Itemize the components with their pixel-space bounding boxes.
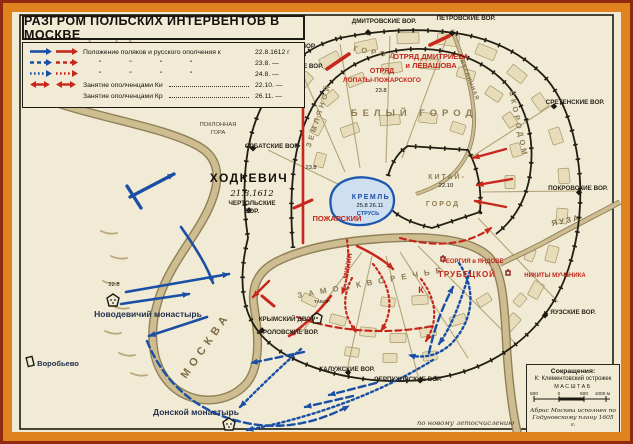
novodevichy-fort-icon xyxy=(107,294,119,306)
city-block xyxy=(545,245,560,263)
date-23-8-west: 23.8 xyxy=(305,165,316,171)
label-otryad-dmitrieva: ОТРЯД ДМИТРИЕВА xyxy=(393,52,469,61)
label-otryad-lopaty: ОТРЯД xyxy=(370,68,394,75)
label-novodevichy: Новодевичий монастырь xyxy=(94,309,202,319)
abbreviation-line: К: Клементовский острожек xyxy=(530,376,616,382)
legend-leader-line xyxy=(169,85,249,87)
city-block xyxy=(527,280,544,299)
city-block xyxy=(383,354,397,363)
date-22-8: 22.8 xyxy=(108,282,119,288)
gate-label-petrovskie: ПЕТРОВСКИЕ ВОР. xyxy=(436,15,495,22)
city-block xyxy=(450,121,466,135)
moskva-river xyxy=(60,104,518,432)
legend-date: 26.11. — xyxy=(255,93,299,100)
gate-label-frolovskie: ФРОЛОВСКИЕ ВОР. xyxy=(257,329,318,336)
city-block xyxy=(505,176,515,189)
legend-label: Занятие ополченцами Кремля xyxy=(83,93,163,100)
gate-label-yauzskie: ЯУЗСКИЕ ВОР. xyxy=(550,309,596,316)
scale-bar: 500 0 500 1000 м xyxy=(530,390,616,404)
city-block xyxy=(329,314,347,327)
legend-dashed-arrows-icon xyxy=(28,58,80,69)
gate-label-orbatskie: ОРБАТСКИЕ ВОР. xyxy=(245,143,300,150)
militia-position-bar xyxy=(262,296,274,306)
label-poklonnaya-1: ПОКЛОННАЯ xyxy=(200,122,237,128)
legend-dotted-arrows-icon xyxy=(28,69,80,80)
scale-tick-label: 1000 м xyxy=(595,391,610,397)
label-georgiya: ГЕОРГИЯ в ЯНДОВЕ xyxy=(442,259,503,265)
city-block xyxy=(340,122,360,138)
label-poklonnaya-2: ГОРА xyxy=(211,130,226,136)
city-block xyxy=(476,292,493,307)
gate-label-dmitrovskie: ДМИТРОВСКИЕ ВОР. xyxy=(352,18,417,25)
legend-date: 22.10. — xyxy=(255,82,299,89)
poster-frame: ДМИТРОВСКИЕ ВОР. ПЕТРОВСКИЕ ВОР. ТВЕРСКИ… xyxy=(0,0,633,444)
label-donskoy: Донской монастырь xyxy=(153,407,239,417)
legend-row: Положение поляков и русского ополчения к… xyxy=(28,47,299,58)
legend-row: Занятие ополченцами Китай-города 22.10. … xyxy=(28,80,299,91)
city-block xyxy=(513,293,528,308)
label-vorobyovo: Воробьево xyxy=(37,359,79,368)
legend-row: Занятие ополченцами Кремля 26.11. — xyxy=(28,91,299,102)
legend-leader-line xyxy=(169,96,249,98)
legend-date: 24.8. — xyxy=(255,71,299,78)
legend-label: " " " " xyxy=(83,71,252,78)
city-block xyxy=(412,295,429,305)
legend-solid-arrows-icon xyxy=(28,47,80,58)
city-block xyxy=(397,32,419,44)
label-krymsky-dvor: КРЫМСКИЙ ДВОР xyxy=(259,314,316,323)
label-otryad-dmitrieva-2: и ЛЕВАШОВА xyxy=(405,61,457,70)
legend-date: 22.8.1612 г xyxy=(255,49,299,56)
scale-box: Сокращения: К: Клементовский острожек МА… xyxy=(526,364,620,432)
map-title-text: РАЗГРОМ ПОЛЬСКИХ ИНТЕРВЕНТОВ В МОСКВЕ xyxy=(24,14,303,42)
street-line xyxy=(348,256,372,366)
label-ostrozhek-k: К xyxy=(418,285,424,295)
label-tabor: ТАБОР xyxy=(314,299,330,305)
church-icon xyxy=(506,269,510,275)
district-kitay-2: ГОРОД xyxy=(426,201,460,208)
credit-line-2: Годуновскому плану 1605 г. xyxy=(530,415,616,429)
map-area: ДМИТРОВСКИЕ ВОР. ПЕТРОВСКИЕ ВОР. ТВЕРСКИ… xyxy=(12,12,621,432)
district-kitay-1: КИТАЙ- xyxy=(428,172,466,181)
legend: Положение поляков и русского ополчения к… xyxy=(22,42,305,108)
label-kremlin: КРЕМЛЬ xyxy=(352,194,390,201)
city-block xyxy=(381,297,396,307)
city-block xyxy=(558,168,570,184)
label-kremlin-dates: 25.8 26.11 xyxy=(357,203,384,209)
label-pozharsky: ПОЖАРСКИЙ xyxy=(313,214,362,223)
gate-label-sretenskie: СРЕТЕНСКИЕ ВОР. xyxy=(546,99,605,106)
label-khodkevich-date: 21.8.1612 xyxy=(229,189,273,199)
legend-label: Положение поляков и русского ополчения к xyxy=(83,49,252,56)
city-block xyxy=(507,64,528,84)
district-bely-gorod: БЕЛЫЙ ГОРОД xyxy=(351,107,478,119)
gate-label-chertolskie: ЧЕРТОЛЬСКИЕ xyxy=(228,200,275,207)
city-block xyxy=(390,334,406,343)
city-block xyxy=(485,85,504,102)
abbreviations-title: Сокращения: xyxy=(530,368,616,375)
label-otryad-lopaty-2: ЛОПАТЫ-ПОЖАРСКОГО xyxy=(343,77,421,84)
label-kitay-date: 22.10 xyxy=(439,183,454,189)
streets xyxy=(268,36,576,376)
river-label-moskva: МОСКВА xyxy=(179,310,233,381)
date-23-8-north: 23.8 xyxy=(375,88,386,94)
gate-label-kaluzhskie: КАЛУЖСКИЕ ВОР. xyxy=(319,366,375,373)
label-trubetskoy: ТРУБЕЦКОЙ xyxy=(438,270,496,279)
calendar-note: по новому летосчислению xyxy=(417,419,514,427)
legend-label: " " " " xyxy=(83,60,252,67)
legend-row: " " " " 24.8. — xyxy=(28,69,299,80)
label-minin: МИНИН xyxy=(343,253,354,280)
map-title: РАЗГРОМ ПОЛЬСКИХ ИНТЕРВЕНТОВ В МОСКВЕ xyxy=(22,15,305,40)
label-nikity: НИКИТЫ МУЧЕНИКА xyxy=(524,273,586,279)
credit-line-1: Абрис Москвы исполнен по xyxy=(530,408,616,415)
city-block xyxy=(360,327,377,338)
gate-label-chertolskie-2: ВОР. xyxy=(245,208,260,215)
legend-date: 23.8. — xyxy=(255,60,299,67)
legend-row: " " " " 23.8. — xyxy=(28,58,299,69)
river-label-neglinnaya: НЕГЛИННАЯ xyxy=(458,59,480,101)
city-block xyxy=(548,127,563,146)
legend-red-converging-arrows-icon xyxy=(28,80,80,91)
gate-label-pokrovskie: ПОКРОВСКИЕ ВОР. xyxy=(548,185,608,192)
khodkevich-position-arrow xyxy=(130,174,174,197)
city-block xyxy=(475,43,498,61)
legend-label: Занятие ополченцами Китай-города xyxy=(83,82,163,89)
vorobyovo-icon xyxy=(26,356,34,366)
gate-label-serpukhovskie: СЕРПУХОВСКИЕ ВОР. xyxy=(374,376,442,383)
label-khodkevich: ХОДКЕВИЧ xyxy=(210,171,288,185)
orange-frame: ДМИТРОВСКИЕ ВОР. ПЕТРОВСКИЕ ВОР. ТВЕРСКИ… xyxy=(3,3,630,441)
